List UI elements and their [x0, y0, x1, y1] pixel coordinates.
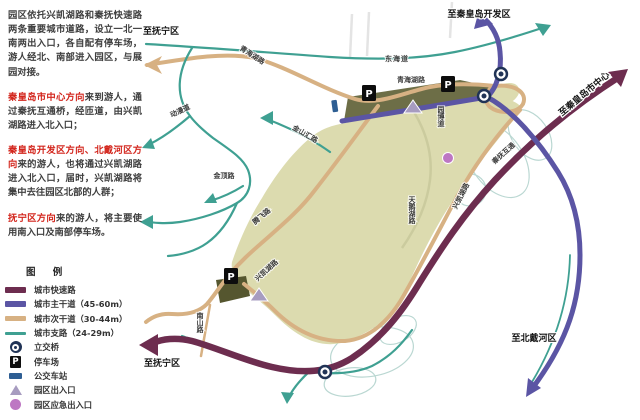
interchange-icon [477, 89, 491, 103]
park-area [232, 98, 522, 344]
road-label-nanshan-lu: 南山路 [196, 311, 205, 334]
branch-swatch [5, 332, 26, 335]
direction-label-to-beidaihe: 至北戴河区 [511, 332, 556, 344]
expressway-swatch [5, 287, 26, 293]
direction-label-to-funing-top: 至抚宁区 [143, 25, 179, 37]
planning-map-figure: P P P 东海道 青海湖路 青海湖路 动漫道 金山汇路 金顶路 腾飞路 园博道… [0, 0, 640, 420]
road-label-jinding-lu: 金顶路 [213, 171, 236, 180]
road-dongman-dao [145, 48, 250, 223]
description-text-block: 园区依托兴凯湖路和秦抚快速路两条重要城市道路，设立一北一南两出入口，各自配有停车… [8, 9, 142, 251]
legend-label: 城市快速路 [34, 284, 76, 296]
road-dongman-branch-west [150, 116, 190, 144]
parking-icon: P [441, 76, 455, 92]
svg-text:P: P [227, 272, 234, 283]
road-label-tianehu-lu: 天鹅湖路 [408, 196, 417, 225]
legend-title: 图 例 [26, 264, 127, 278]
paragraph-3-text: 来的游人，也将通过兴凯湖路进入北入口，届时，兴凯湖路将集中去往园区北部的人群； [8, 159, 142, 198]
legend-item-secondary: 城市次干道（30-44m） [5, 312, 127, 326]
arrow-jinshanhui [260, 111, 273, 125]
legend-label: 园区应急出入口 [34, 399, 92, 411]
legend-item-parking: P 停车场 [5, 354, 127, 368]
legend: 图 例 城市快速路 城市主干道（45-60m） 城市次干道（30-44m） 城市… [5, 264, 127, 412]
arrow-jinding [204, 193, 217, 203]
direction-label-to-funing-bottom: 至抚宁区 [144, 357, 180, 369]
legend-label: 城市支路（24-29m） [34, 327, 119, 339]
interchange-icon [494, 67, 508, 81]
emergency-exit-icon [5, 399, 26, 410]
highlight-city-center-direction: 秦皇岛市中心方向 [8, 92, 85, 103]
highlight-funing-direction: 抚宁区方向 [8, 213, 56, 224]
bus-station-icon [5, 373, 26, 380]
road-label-yuanbo-dao: 园博道 [437, 105, 445, 128]
road-label-donghai-dao: 东海道 [385, 54, 409, 63]
city-grid-lines [350, 2, 452, 58]
legend-label: 城市次干道（30-44m） [34, 313, 127, 325]
interchange-icon [318, 365, 332, 379]
svg-text:P: P [444, 80, 451, 91]
legend-item-arterial: 城市主干道（45-60m） [5, 297, 127, 311]
svg-text:P: P [365, 89, 372, 100]
arrow-to-funing-bottom [139, 334, 158, 356]
road-dongman-branch-south [168, 203, 237, 256]
legend-label: 公交车站 [34, 370, 67, 382]
description-paragraph-4: 抚宁区方向来的游人，将主要使用南入口及南部停车场。 [8, 212, 142, 240]
legend-label: 园区出入口 [34, 384, 76, 396]
legend-item-branch: 城市支路（24-29m） [5, 326, 127, 340]
emergency-exit-icon [443, 153, 454, 164]
parking-icon: P [362, 85, 376, 101]
description-paragraph-2: 秦皇岛市中心方向来到游人，通过秦抚互通桥，经匝道，由兴凯湖路进入北入口； [8, 91, 142, 133]
legend-item-interchange: 立交桥 [5, 340, 127, 354]
legend-label: 停车场 [34, 356, 59, 368]
direction-label-to-kaifaqu: 至秦皇岛开发区 [447, 8, 510, 20]
legend-label: 城市主干道（45-60m） [34, 298, 127, 310]
direction-label-to-city-center: 至秦皇岛市中心 [556, 69, 612, 119]
bus-station-icon [331, 100, 338, 113]
description-paragraph-1: 园区依托兴凯湖路和秦抚快速路两条重要城市道路，设立一北一南两出入口，各自配有停车… [8, 9, 142, 80]
arrow-south-spur [281, 392, 294, 404]
parking-icon: P [5, 356, 26, 368]
legend-item-bus-station: 公交车站 [5, 369, 127, 383]
legend-label: 立交桥 [34, 341, 59, 353]
legend-item-expressway: 城市快速路 [5, 283, 127, 297]
road-label-qinghaihu-east: 青海湖路 [397, 75, 426, 84]
entrance-triangle-icon [5, 385, 26, 395]
road-donghai-dao [146, 27, 545, 59]
parking-icon: P [224, 268, 238, 284]
legend-item-entrance: 园区出入口 [5, 383, 127, 397]
legend-item-emergency-exit: 园区应急出入口 [5, 397, 127, 411]
interchange-icon [5, 341, 26, 353]
description-paragraph-3: 秦皇岛开发区方向、北戴河区方向来的游人，也将通过兴凯湖路进入北入口，届时，兴凯湖… [8, 144, 142, 201]
arterial-swatch [5, 301, 26, 307]
secondary-swatch [5, 316, 26, 321]
